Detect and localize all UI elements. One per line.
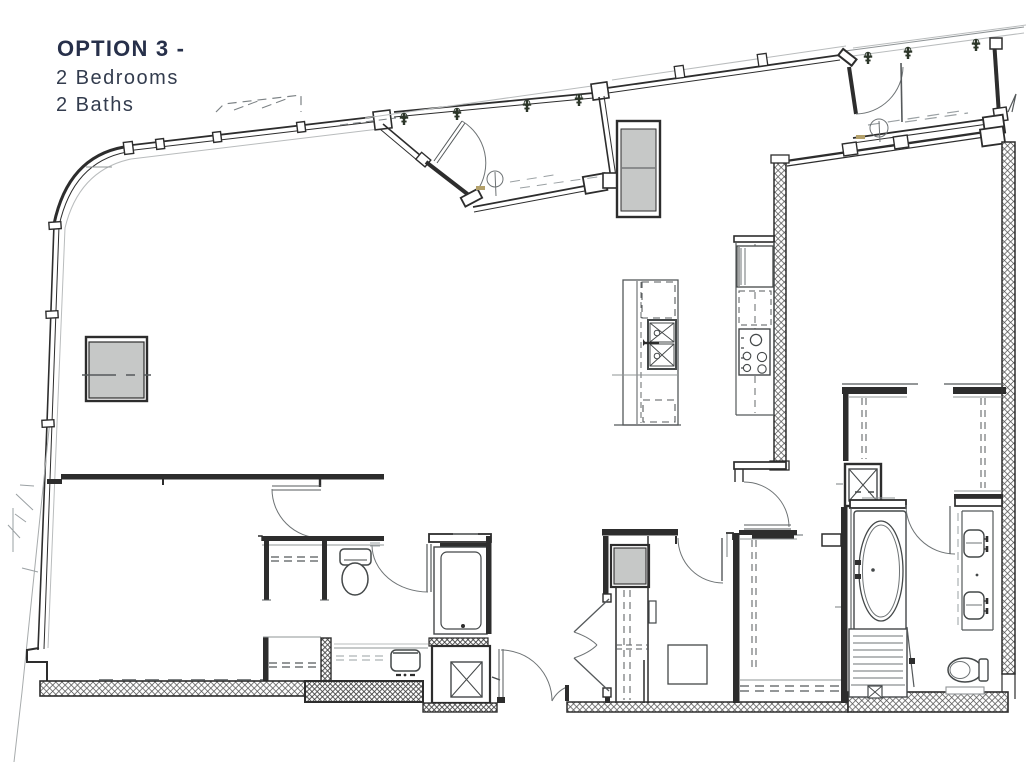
svg-text:2 Bedrooms: 2 Bedrooms xyxy=(56,67,179,89)
svg-text:2 Baths: 2 Baths xyxy=(56,94,134,116)
svg-text:OPTION 3 -: OPTION 3 - xyxy=(57,36,185,61)
